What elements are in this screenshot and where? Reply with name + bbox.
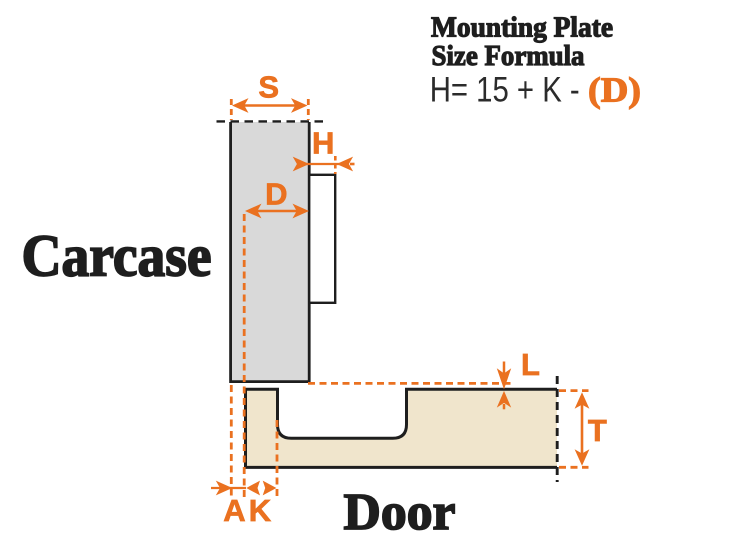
svg-text:L: L	[521, 347, 540, 382]
svg-text:H: H	[312, 125, 334, 160]
svg-text:S: S	[258, 70, 279, 105]
svg-text:D: D	[265, 177, 287, 212]
svg-text:Door: Door	[344, 484, 456, 541]
svg-text:T: T	[588, 413, 607, 448]
svg-text:Carcase: Carcase	[22, 223, 212, 289]
svg-text:(D): (D)	[588, 70, 641, 109]
svg-text:K: K	[249, 493, 272, 528]
svg-text:Mounting Plate: Mounting Plate	[431, 12, 613, 44]
svg-text:Size Formula: Size Formula	[432, 40, 585, 72]
svg-text:A: A	[223, 493, 245, 528]
svg-text:H= 15 + K -: H= 15 + K -	[430, 70, 580, 110]
